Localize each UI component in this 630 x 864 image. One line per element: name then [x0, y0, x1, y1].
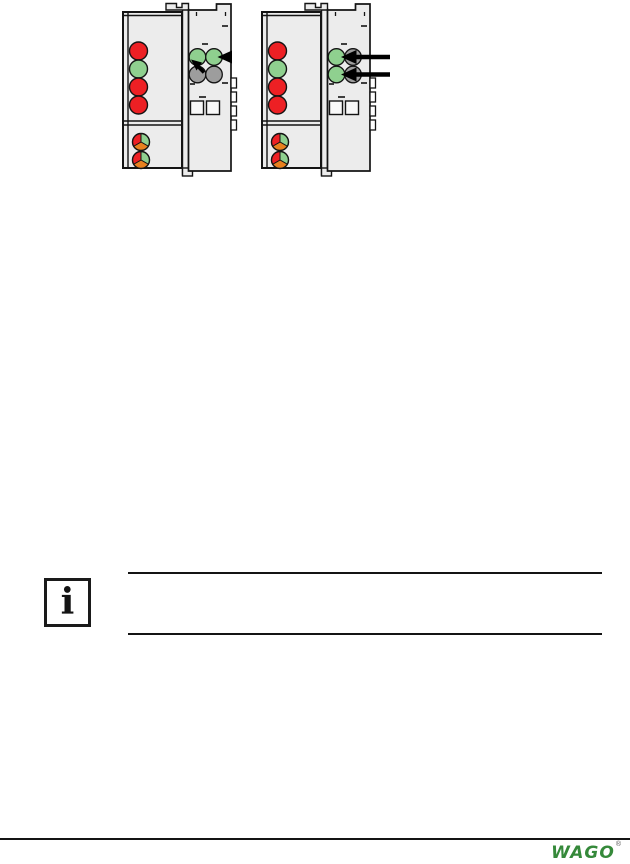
note-top-rule — [128, 572, 602, 574]
information-icon-glyph: i — [61, 584, 75, 620]
device-led-figure — [0, 0, 630, 200]
device-right-body — [262, 4, 376, 177]
wago-logo-text: WAGO — [551, 843, 615, 863]
information-icon: i — [44, 578, 91, 627]
device-left-body — [123, 4, 237, 177]
wago-logo: WAGO® — [551, 843, 620, 863]
footer-rule — [0, 838, 630, 840]
note-bottom-rule — [128, 633, 602, 635]
manual-page: i WAGO® — [0, 0, 630, 864]
io-led-bottom-right — [206, 66, 223, 83]
registered-trademark-mark: ® — [616, 841, 621, 848]
